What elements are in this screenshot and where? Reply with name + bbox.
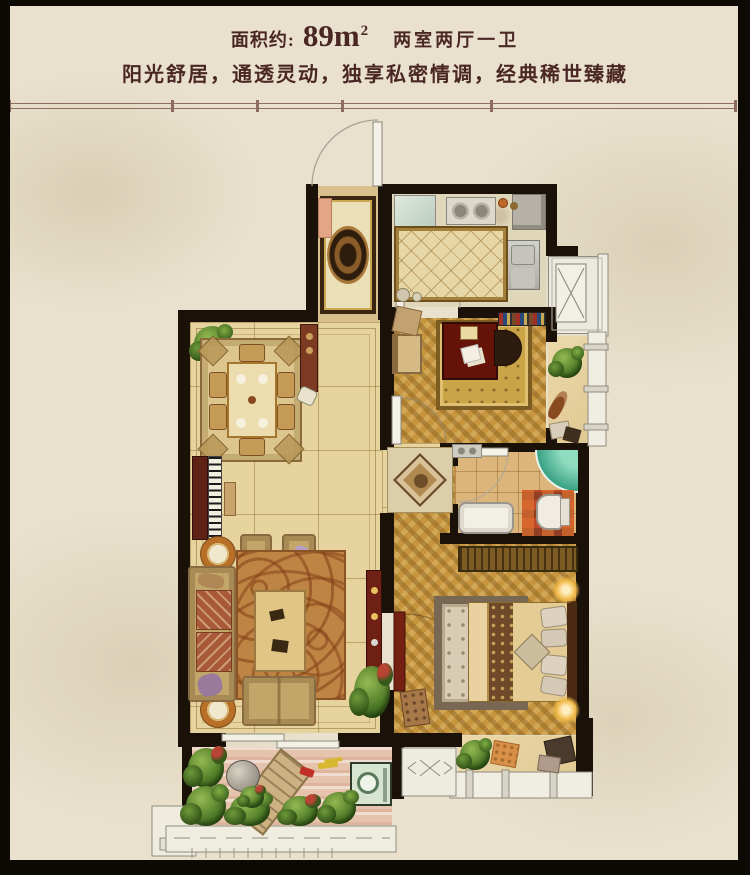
bedroom-door-leaf	[394, 612, 405, 691]
entry-door-leaf	[373, 122, 382, 186]
floorplan-poster: 面积约: 89m 2 两室两厅一卫 阳光舒居，通透灵动，独享私密情调，经典稀世臻…	[0, 0, 750, 875]
dining-table	[227, 362, 277, 438]
throw-pillow	[197, 572, 225, 590]
bedroom-ottoman	[400, 688, 431, 727]
utility-window-frame	[598, 254, 608, 336]
fruit-bowl	[498, 198, 508, 208]
cabinet-decor	[371, 587, 378, 594]
bathroom-sink	[452, 444, 482, 458]
window-mullion	[584, 424, 608, 430]
sofa	[188, 566, 236, 702]
washer-panel	[383, 768, 387, 802]
balcony-plant	[282, 796, 318, 826]
frame-edge-left	[0, 0, 10, 875]
kitchen-rug	[396, 228, 506, 300]
bathroom-door-arc	[458, 452, 508, 502]
table-tray	[269, 609, 285, 622]
bed-blanket	[489, 603, 513, 701]
sideboard-cabinet	[300, 324, 318, 392]
potted-plant	[354, 666, 390, 718]
bathtub	[458, 502, 514, 534]
piano-bench	[224, 482, 236, 516]
sink-basin	[511, 245, 535, 265]
storage-bench	[458, 546, 578, 572]
desk-papers	[460, 344, 481, 364]
floorplan	[0, 0, 750, 875]
stove-cooktop	[446, 197, 496, 225]
window-mullion	[466, 770, 473, 798]
frame-edge-bottom	[0, 860, 750, 875]
throw-pillow	[196, 671, 225, 698]
desk-lamp	[460, 326, 478, 340]
cushion	[490, 740, 520, 768]
study-door-leaf	[392, 396, 401, 444]
desk	[442, 322, 498, 380]
toilet-tank	[560, 498, 570, 526]
bed-pillow	[540, 675, 569, 697]
toilet	[536, 494, 562, 530]
loveseat	[242, 676, 316, 726]
washer-door	[357, 772, 379, 794]
nightstand-lamp	[552, 696, 580, 724]
sliding-door-panel	[277, 741, 339, 748]
kitchen-sink	[506, 240, 540, 290]
kitchen-pot	[396, 288, 410, 302]
bed-pillow	[541, 628, 568, 647]
study-armchair	[392, 334, 422, 374]
piano-body	[192, 456, 208, 540]
headboard	[567, 601, 577, 705]
cushion	[537, 755, 561, 774]
balcony-sill	[166, 826, 396, 852]
medallion-center	[414, 474, 428, 488]
frame-edge-right	[738, 0, 750, 875]
balcony-plant	[322, 792, 356, 824]
sideboard-decor	[306, 333, 313, 340]
spice-jar	[510, 202, 518, 210]
baywindow-plant	[460, 740, 490, 770]
window-mullion	[584, 344, 608, 350]
bookshelf	[498, 312, 546, 326]
sofa-cushion	[196, 632, 232, 672]
bed-pillow	[540, 605, 569, 628]
window-mullion	[550, 770, 557, 798]
sofa-cushion	[196, 590, 232, 630]
coffee-table	[254, 590, 306, 672]
kitchen-counter	[394, 195, 436, 231]
dining-chair	[239, 438, 265, 456]
piano-keys	[208, 456, 222, 540]
double-bed	[468, 602, 576, 702]
linework-layer	[0, 0, 750, 875]
ottoman	[392, 306, 423, 337]
balcony-plant	[186, 786, 226, 826]
center-bowl	[248, 396, 256, 404]
dining-chair	[209, 372, 227, 398]
table-tray	[271, 639, 289, 653]
hallway-medallion-tile	[387, 447, 453, 513]
balcony-plant	[188, 748, 224, 788]
dining-chair	[277, 372, 295, 398]
baywindow-plant	[552, 348, 582, 378]
dining-chair	[277, 404, 295, 430]
kitchen-bowl	[412, 292, 422, 302]
entry-door-arc	[312, 120, 378, 186]
entry-mat	[318, 198, 332, 238]
place-setting	[236, 374, 246, 384]
window-mullion	[584, 386, 608, 392]
refrigerator	[512, 194, 546, 230]
window-mullion	[502, 770, 509, 798]
entry-rug-medallion	[327, 226, 369, 284]
balcony-plant	[240, 786, 264, 808]
nightstand-lamp	[552, 576, 580, 604]
dining-chair	[239, 344, 265, 362]
dining-chair	[209, 404, 227, 430]
ac-platform	[402, 748, 456, 796]
sliding-door-panel	[222, 734, 284, 741]
frame-edge-top	[0, 0, 750, 6]
bed-foot-runner	[469, 603, 489, 701]
